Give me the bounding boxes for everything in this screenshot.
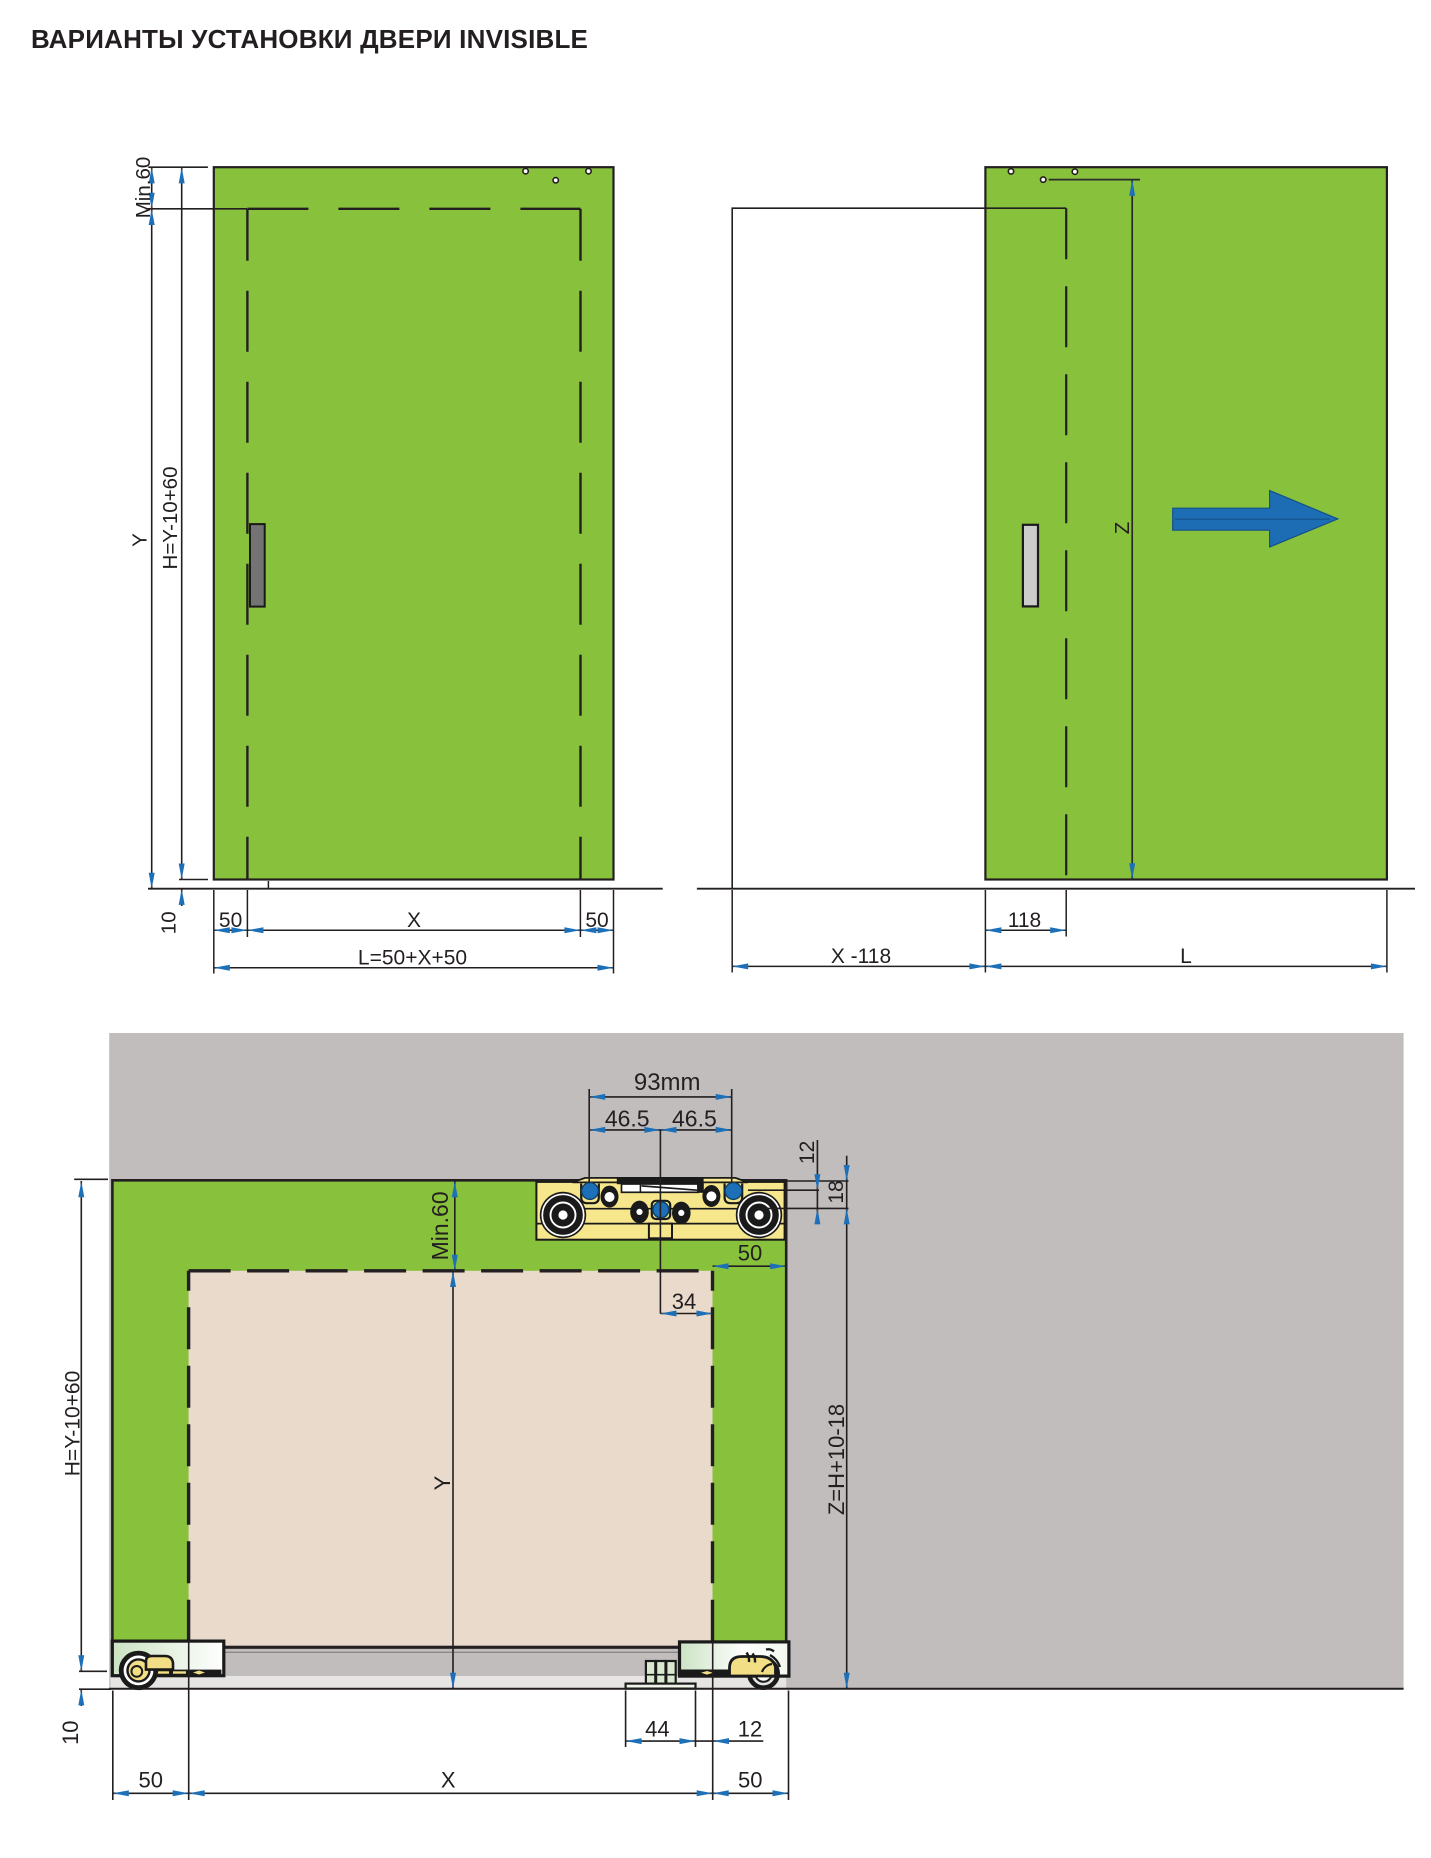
svg-text:93mm: 93mm — [634, 1069, 701, 1096]
svg-text:H=Y-10+60: H=Y-10+60 — [62, 1371, 85, 1476]
svg-text:50: 50 — [738, 1768, 762, 1793]
svg-text:Min.60: Min.60 — [132, 157, 155, 219]
svg-text:Min.60: Min.60 — [427, 1191, 453, 1260]
svg-text:ВАРИАНТЫ УСТАНОВКИ ДВЕРИ INVIS: ВАРИАНТЫ УСТАНОВКИ ДВЕРИ INVISIBLE — [31, 24, 588, 54]
svg-text:46.5: 46.5 — [605, 1105, 650, 1131]
svg-text:Y: Y — [129, 533, 152, 547]
svg-text:X: X — [441, 1768, 456, 1793]
svg-text:L=50+X+50: L=50+X+50 — [358, 946, 467, 969]
svg-text:Y: Y — [430, 1475, 455, 1490]
svg-text:X: X — [407, 909, 421, 932]
svg-text:12: 12 — [738, 1716, 762, 1741]
svg-text:44: 44 — [645, 1716, 669, 1741]
svg-text:H=Y-10+60: H=Y-10+60 — [159, 467, 182, 570]
svg-text:50: 50 — [738, 1241, 762, 1266]
svg-text:10: 10 — [58, 1720, 83, 1744]
svg-text:10: 10 — [158, 911, 181, 934]
svg-text:50: 50 — [219, 909, 242, 932]
svg-text:118: 118 — [1008, 909, 1041, 932]
svg-text:L: L — [1180, 945, 1192, 968]
svg-text:34: 34 — [672, 1289, 696, 1314]
svg-text:46.5: 46.5 — [672, 1105, 717, 1131]
svg-text:Z: Z — [1111, 522, 1134, 535]
svg-text:50: 50 — [585, 909, 608, 932]
svg-text:X -118: X -118 — [831, 945, 891, 968]
svg-text:Z=H+10-18: Z=H+10-18 — [824, 1404, 849, 1515]
svg-text:50: 50 — [139, 1768, 163, 1793]
svg-text:12: 12 — [796, 1141, 819, 1164]
svg-text:18: 18 — [825, 1180, 848, 1203]
